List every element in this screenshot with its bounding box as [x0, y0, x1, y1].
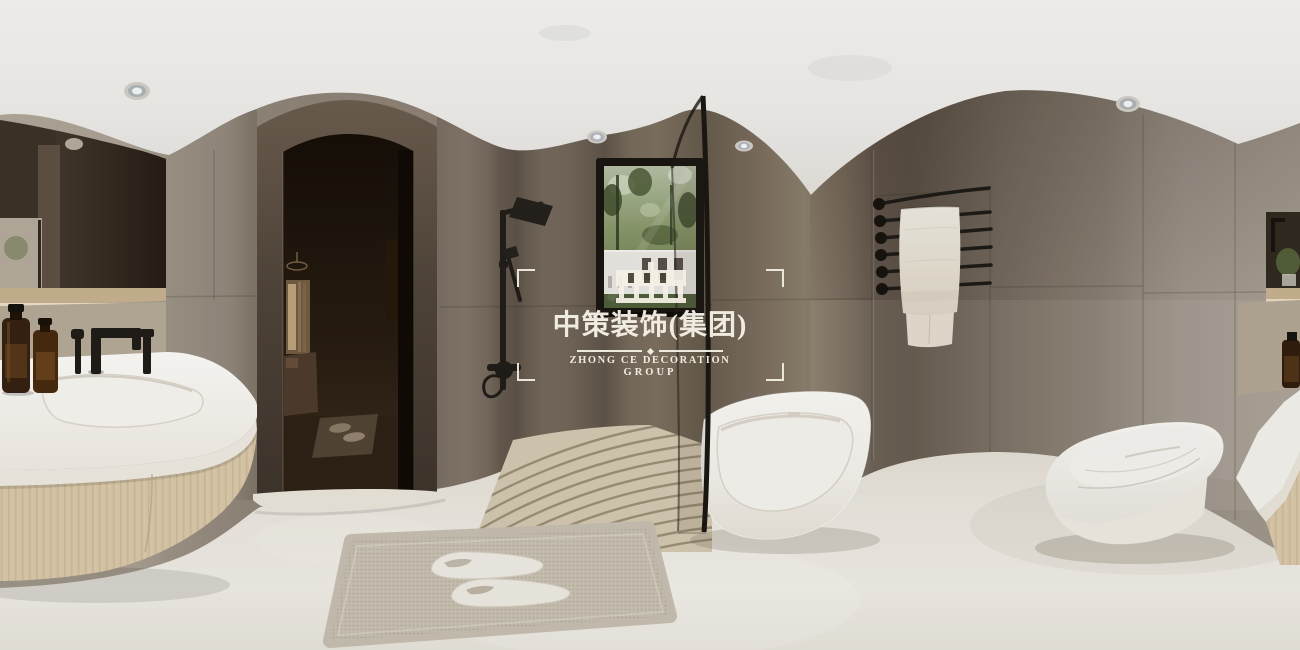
watermark-divider — [577, 348, 723, 354]
brand-name-english-line1: ZHONG CE DECORATION — [530, 356, 770, 367]
gate-building-logo-icon — [616, 262, 686, 306]
brand-name-chinese: 中策装饰(集团) — [500, 311, 800, 342]
brand-name-english-line2: GROUP — [530, 368, 770, 379]
bathroom-360-panorama-photo: 中策装饰(集团) ZHONG CE DECORATION GROUP — [0, 0, 1300, 650]
corner-bracket-top-right-icon — [766, 269, 784, 287]
corner-bracket-top-left-icon — [517, 269, 535, 287]
